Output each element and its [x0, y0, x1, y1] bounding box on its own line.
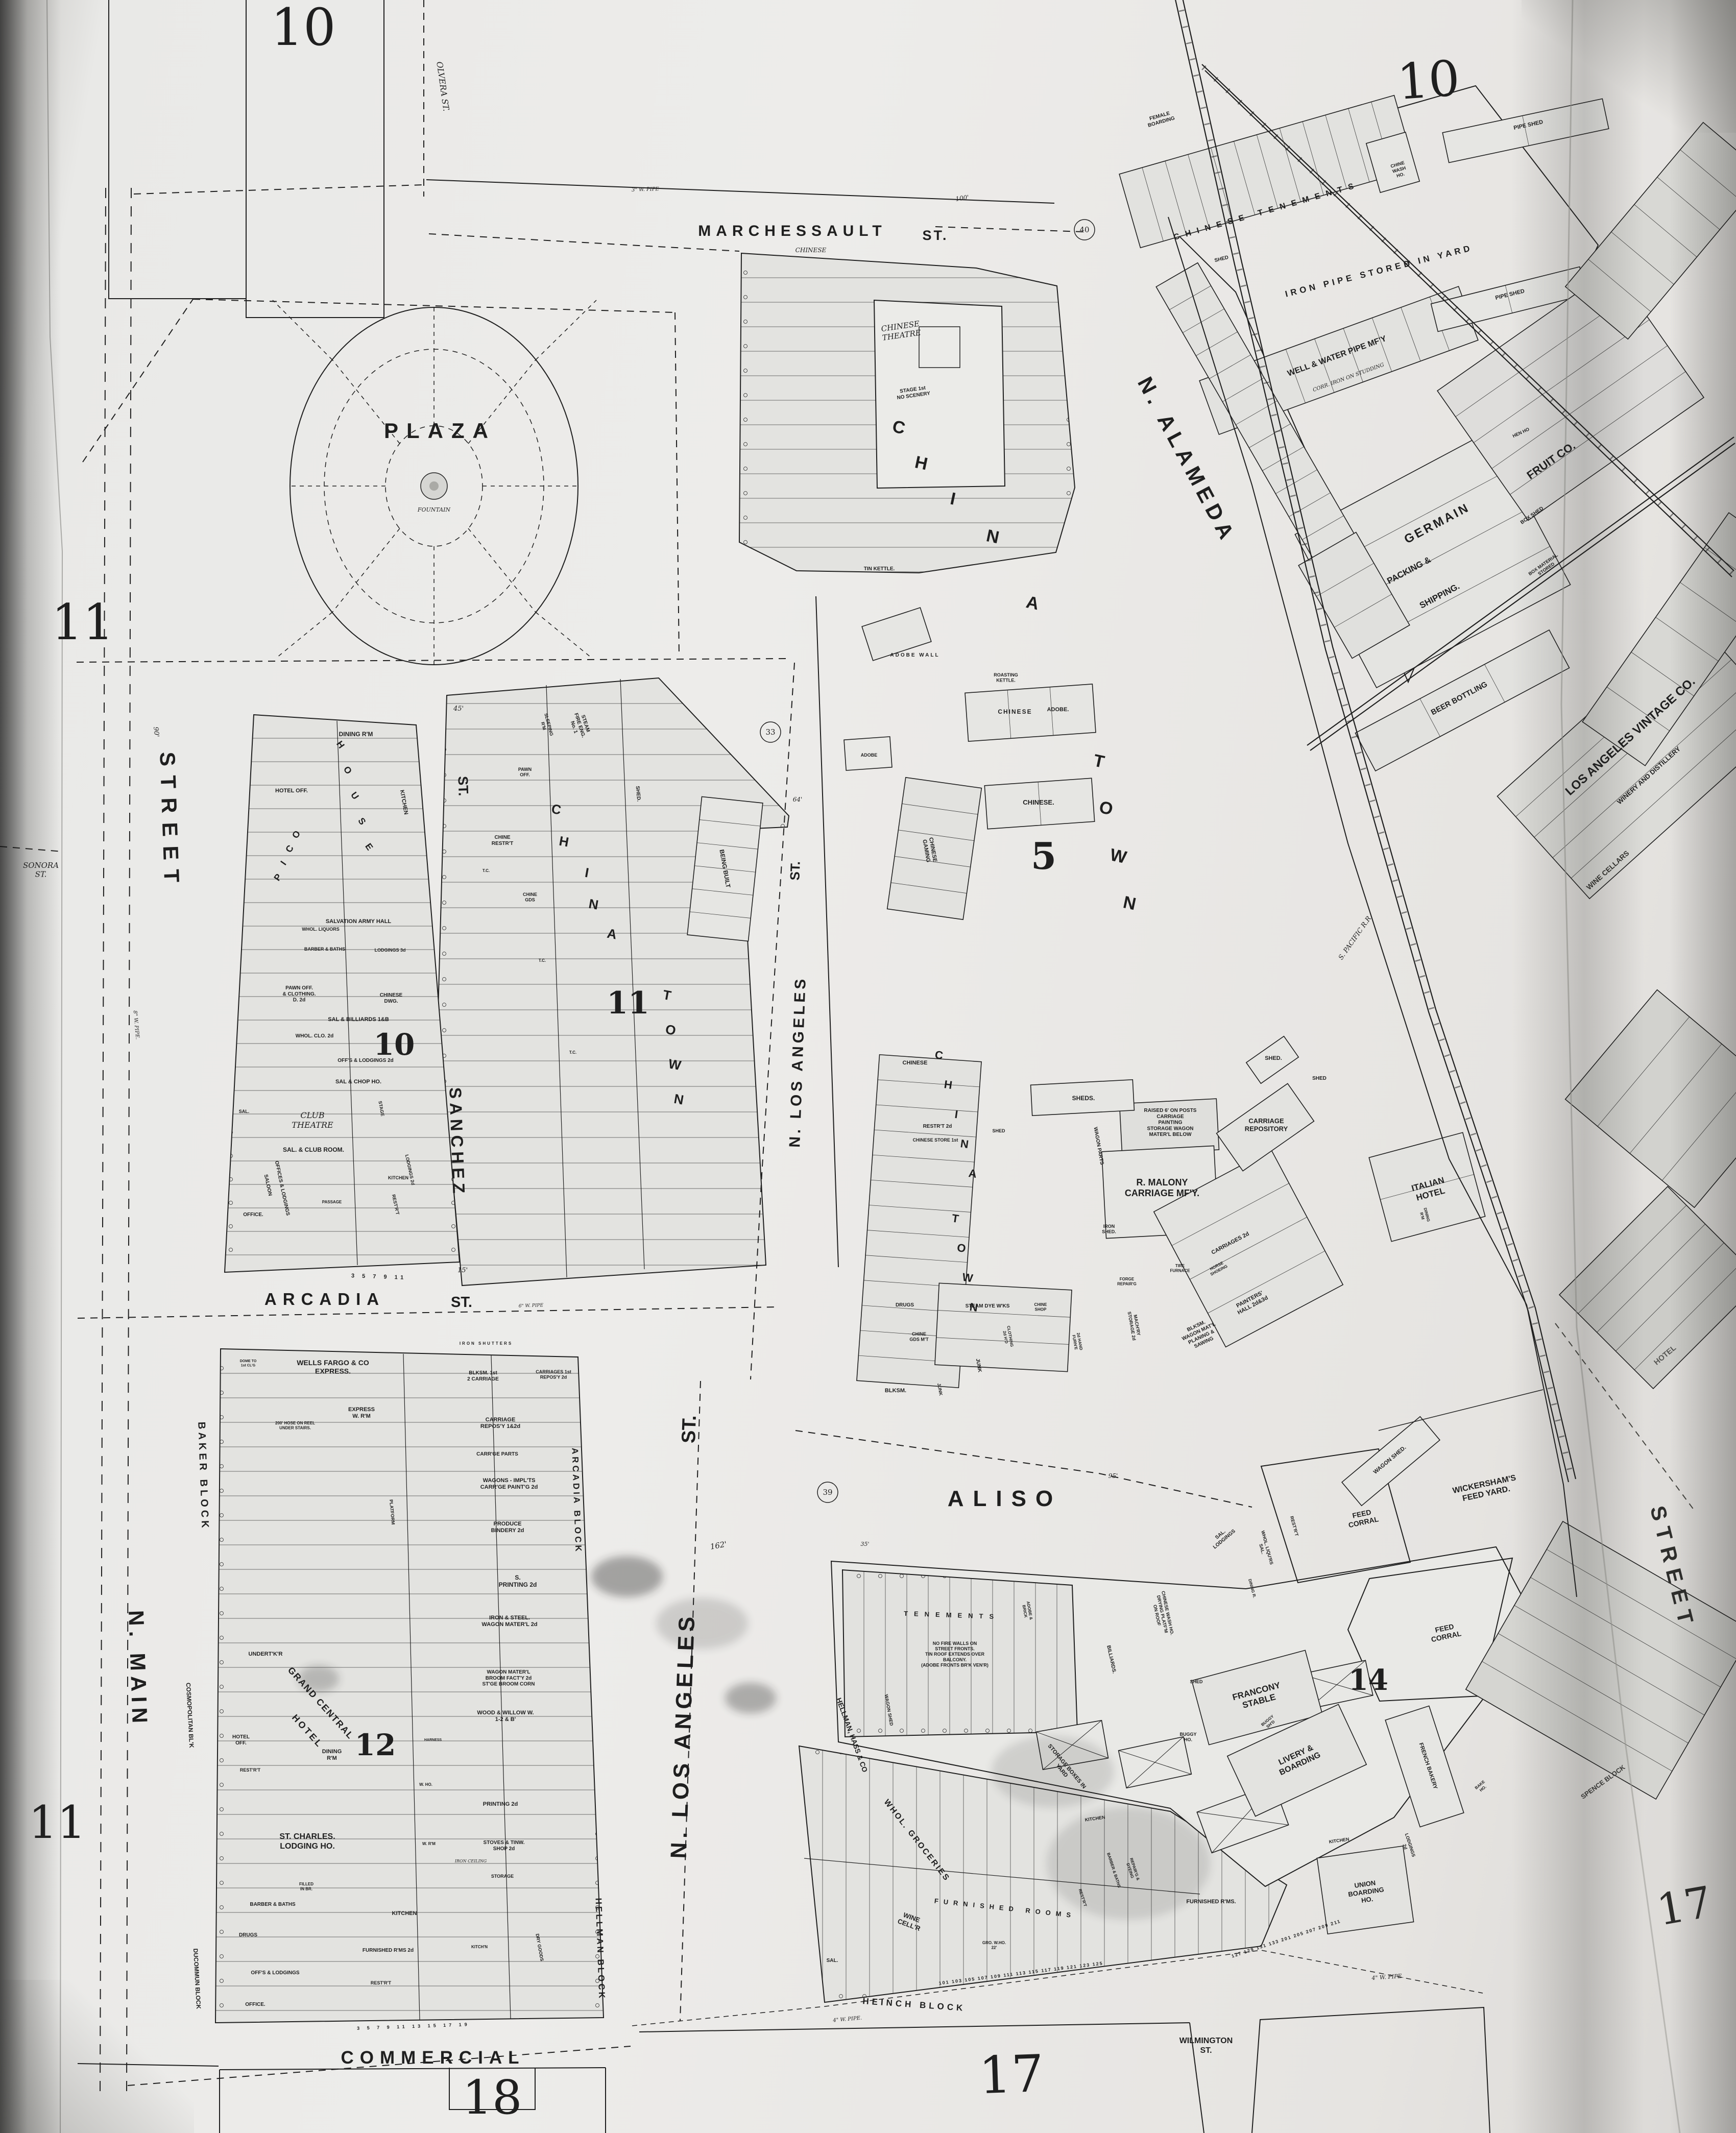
- dashed-line-19: [273, 300, 332, 360]
- label-a: A: [1024, 592, 1041, 614]
- label-95: 95': [1108, 1472, 1118, 1480]
- label-8-w-pipe: 8" W. PIPE.: [132, 1010, 140, 1040]
- label-sal-chop-ho: SAL & CHOP HO.: [335, 1079, 381, 1085]
- label-cosmopolitan-bl-k: COSMOPOLITAN BL'K: [185, 1683, 196, 1749]
- label-11: 11: [52, 594, 114, 651]
- label-3-5-7-9-11-13-15-17-19: 3 5 7 9 11 13 15 17 19: [357, 2022, 470, 2031]
- label-whol-liqu-rs-sal: WHOL. LIQU'RSSAL.: [1255, 1530, 1274, 1567]
- label-bake-ho: BAKEHO.: [1474, 1779, 1489, 1794]
- label-barber-baths: BARBER & BATHS: [304, 947, 345, 952]
- label-marchessault: MARCHESSAULT: [698, 223, 886, 239]
- label-dining-r-m: DINING R'M: [339, 731, 373, 738]
- label-shed: SHED: [992, 1128, 1005, 1133]
- line-4: [78, 2064, 219, 2066]
- label-14: 14: [1348, 1663, 1388, 1697]
- circled-number-40: 40: [1074, 220, 1095, 240]
- label-blksm-1st-2-carriage: BLKSM. 1st2 CARRIAGE: [467, 1370, 499, 1382]
- label-office: OFFICE.: [243, 1212, 263, 1218]
- label-45: 45': [453, 705, 464, 713]
- label-filled-in-br: FILLEDIN BR.: [299, 1882, 314, 1891]
- label-90: 90': [152, 726, 160, 737]
- label-sheds: SHEDS.: [1072, 1095, 1095, 1102]
- label-olvera-st: OLVERA ST.: [435, 61, 451, 112]
- label-chinese: CHINESE: [795, 247, 827, 254]
- label-carriages-1st-repos-y-2d: CARRIAGES 1stREPOS'Y 2d: [536, 1369, 571, 1380]
- label-64: 64': [793, 796, 803, 803]
- label-fountain: FOUNTAIN: [417, 506, 451, 513]
- label-harness: HARNESS: [424, 1738, 442, 1742]
- label-15: 15': [457, 1267, 468, 1274]
- label-baker-block: BAKER BLOCK: [196, 1422, 210, 1531]
- label-wilmington-st: WILMINGTONST.: [1179, 2037, 1233, 2055]
- label-chinese-store-1st: CHINESE STORE 1st: [913, 1137, 958, 1143]
- label-iron-pipe-stored-in-yard: IRON PIPE STORED IN YARD: [1284, 243, 1474, 299]
- label-rest-r-t: REST'R'T: [1289, 1515, 1299, 1537]
- dashed-line-25: [332, 528, 400, 612]
- line-9: [639, 2023, 1190, 2032]
- block-10-pico: [225, 715, 460, 1272]
- smudge-3: [298, 1665, 339, 1692]
- label-5: 5: [1031, 834, 1056, 878]
- label-storage: STORAGE: [491, 1874, 514, 1879]
- label-lodgings-3d: LODGINGS 3d: [374, 948, 405, 953]
- label-t-c: T.C.: [539, 958, 546, 963]
- label-162: 162': [709, 1539, 727, 1551]
- sanborn-map-page: CHINESECHINESETHEATRESTAGE 1stNO SCENERY…: [0, 0, 1736, 2133]
- label-restr-t-2d: RESTR'T 2d: [923, 1124, 952, 1129]
- label-mach-ry-storage-2d: MACH'RYSTORAGE 2d: [1127, 1310, 1142, 1341]
- pipe-shed-1: [1442, 99, 1608, 162]
- dashed-line-21: [536, 612, 591, 658]
- circled-number-33: 33: [760, 722, 781, 742]
- label-n-main: N. MAIN: [124, 1610, 152, 1728]
- label-sal: SAL.: [239, 1109, 250, 1114]
- dashed-line-7: [77, 659, 790, 662]
- label-dome-to-1st-cl-g: DOME TO1st CL'G: [240, 1360, 257, 1367]
- line-20: [1379, 1390, 1543, 1431]
- label-shed: SHED: [1312, 1076, 1327, 1081]
- label-salvation-army-hall: SALVATION ARMY HALL: [326, 918, 392, 925]
- dashed-line-6: [675, 312, 679, 656]
- smudge-0: [591, 1556, 663, 1597]
- label-rest-r-t: REST'R'T: [240, 1767, 261, 1773]
- line-5: [220, 2068, 606, 2070]
- label-sanchez: SANCHEZ: [446, 1087, 468, 1198]
- label-adobe-wall: ADOBE WALL: [890, 652, 939, 658]
- dashed-line-20: [277, 612, 332, 658]
- label-iron-shed: IRONSHED.: [1102, 1224, 1116, 1234]
- label-st-charles-lodging-ho: ST. CHARLES.LODGING HO.: [279, 1832, 335, 1851]
- label-10: 10: [271, 0, 335, 57]
- label-roasting-kettle: ROASTINGKETTLE.: [994, 672, 1018, 683]
- smudge-1: [725, 1683, 776, 1713]
- label-plaza: PLAZA: [384, 419, 496, 443]
- dashed-line-11: [78, 1307, 777, 1318]
- dashed-line-10: [0, 846, 62, 852]
- fold-hotel-block: [1559, 1186, 1736, 1389]
- svg-text:33: 33: [765, 728, 775, 737]
- fold-strip-3: [1565, 990, 1736, 1208]
- label-o: O: [1097, 797, 1115, 819]
- adjacent-block-a: [109, 0, 246, 299]
- label-10: 10: [374, 1027, 415, 1062]
- dashed-line-23: [468, 528, 536, 612]
- label-furnished-r-ms: FURNISHED R'MS.: [1186, 1899, 1236, 1905]
- label-produce-bindery-2d: PRODUCEBINDERY 2d: [491, 1521, 524, 1534]
- label-n-los-angeles: N. LOS ANGELES: [786, 976, 809, 1148]
- dashed-line-3: [134, 185, 424, 194]
- label-wagon-parts: WAGON PARTS: [1093, 1127, 1105, 1166]
- label-kitch-n: KITCH'N: [471, 1945, 488, 1949]
- label-n: N: [1121, 892, 1138, 914]
- label-s-pacific-r-r: S. PACIFIC R.R.: [1337, 913, 1374, 961]
- dashed-line-9: [127, 188, 131, 2093]
- label-tin-kettle: TIN KETTLE.: [864, 566, 895, 572]
- label-4-w-pipe: 4" W. PIPE.: [1371, 1973, 1404, 1981]
- label-carriage-repos-y-1-2d: CARRIAGEREPOS'Y 1&2d: [480, 1417, 520, 1429]
- label-heinch-block: HEINCH BLOCK: [862, 1996, 966, 2013]
- label-rest-r-t: REST'R'T: [371, 1980, 392, 1985]
- label-chinese: CHINESE: [903, 1060, 928, 1066]
- label-carriage-repository: CARRIAGEREPOSITORY: [1245, 1117, 1288, 1132]
- steam-dye-row: [935, 1283, 1072, 1371]
- dashed-line-8: [100, 188, 106, 2093]
- svg-text:40: 40: [1079, 225, 1089, 234]
- dashed-line-4: [83, 299, 193, 462]
- block-11: [438, 678, 789, 1286]
- label-barber-baths: BARBER & BATHS: [250, 1902, 296, 1907]
- smudge-2: [1047, 1807, 1210, 1920]
- label-printing-2d: PRINTING 2d: [483, 1801, 518, 1807]
- label-shed: SHED.: [1265, 1055, 1282, 1061]
- label-st: ST.: [455, 776, 471, 796]
- svg-text:39: 39: [823, 1488, 832, 1497]
- label-st: ST.: [678, 1415, 701, 1443]
- label-feed-corral: FEEDCORRAL: [1346, 1507, 1380, 1529]
- dashed-line-1: [429, 234, 739, 251]
- label-w: W: [961, 1271, 974, 1285]
- label-iron-steel-wagon-mater-l-2d: IRON & STEEL.WAGON MATER'L 2d: [481, 1615, 537, 1628]
- label-st: ST.: [451, 1294, 472, 1311]
- label-11: 11: [607, 985, 649, 1021]
- label-ducommun-block: DUCOMMUN BLOCK: [192, 1948, 202, 2009]
- label-arcadia: ARCADIA: [264, 1290, 385, 1308]
- label-6-w-pipe: 6" W. PIPE: [519, 1303, 544, 1309]
- label-kitchen: KITCHEN: [392, 1910, 417, 1917]
- label-sal: SAL.: [827, 1958, 838, 1964]
- label-wagons-impl-ts-carr-ge-paint-g-2d: WAGONS - IMPL'TSCARR'GE PAINT'G 2d: [480, 1477, 538, 1490]
- line-1: [816, 596, 838, 1267]
- label-adobe: ADOBE.: [1047, 707, 1069, 713]
- label-sal-lodgings: SAL.LODGINGS: [1208, 1524, 1237, 1550]
- label-street: STREET: [155, 752, 184, 892]
- label-200-hose-on-reel-under-stairs: 200' HOSE ON REELUNDER STAIRS.: [275, 1421, 315, 1430]
- label-blksm: BLKSM.: [885, 1388, 906, 1394]
- label-100: 100': [955, 193, 969, 203]
- label-sal-billiards-1-b: SAL & BILLIARDS 1&B: [328, 1016, 389, 1023]
- label-t: T: [1092, 750, 1106, 772]
- dashed-line-2: [935, 227, 1082, 232]
- chine-wash-ho: [1366, 132, 1419, 192]
- label-wickersham-s-feed-yard: WICKERSHAM'SFEED YARD.: [1452, 1473, 1518, 1505]
- label-o: O: [956, 1241, 967, 1255]
- label-st: ST.: [787, 861, 803, 881]
- label-chine-gds-m-t: CHINEGDS M'T: [909, 1331, 929, 1342]
- label-office: OFFICE.: [245, 2002, 266, 2007]
- label-forge-repair-g: FORGEREPAIR'G: [1117, 1277, 1137, 1286]
- label-w-r-m: W. R'M: [422, 1841, 436, 1846]
- label-shed: SHED: [1190, 1679, 1203, 1684]
- fold-strip-1: [1565, 123, 1736, 340]
- label-35: 35': [860, 1541, 869, 1547]
- fold-strip-5: [1466, 1521, 1736, 1799]
- label-st: ST.: [922, 228, 948, 243]
- label-11: 11: [29, 1796, 86, 1849]
- label-kitchen: KITCHEN: [388, 1175, 408, 1180]
- label-18: 18: [462, 2070, 522, 2125]
- label-t-c: T.C.: [569, 1050, 576, 1055]
- label-3-w-pipe: 3" W. PIPE: [632, 186, 660, 193]
- label-pawn-off: PAWNOFF.: [518, 767, 532, 778]
- label-n-los-angeles: N. LOS ANGELES: [666, 1612, 700, 1859]
- label-commercial: COMMERCIAL: [341, 2048, 525, 2068]
- dashed-line-12: [751, 663, 794, 1379]
- label-t-c: T.C.: [483, 868, 490, 873]
- label-aliso: ALISO: [948, 1486, 1062, 1511]
- label-3-5-7-9-11: 3 5 7 9 11: [351, 1273, 407, 1281]
- label-iron-ceiling: IRON CEILING: [454, 1859, 487, 1863]
- label-adobe: ADOBE: [861, 753, 878, 758]
- circled-number-39: 39: [817, 1482, 838, 1502]
- label-12: 12: [355, 1728, 396, 1762]
- label-drugs: DRUGS: [896, 1302, 914, 1308]
- label-10: 10: [1395, 50, 1462, 111]
- label-sonora-st: SONORAST.: [23, 861, 59, 879]
- label-17: 17: [1653, 1877, 1716, 1935]
- label-undert-k-r: UNDERT'K'R: [249, 1651, 283, 1657]
- block-12: [215, 1349, 604, 2023]
- label-female-boarding: FEMALEBOARDING: [1146, 110, 1176, 129]
- smudge-5: [992, 1736, 1114, 1807]
- label-carr-ge-parts: CARR'GE PARTS: [476, 1451, 518, 1457]
- label-4-w-pipe: 4" W. PIPE.: [832, 2016, 862, 2024]
- label-off-s-lodgings: OFF'S & LODGINGS: [251, 1970, 299, 1976]
- label-drugs: DRUGS: [239, 1932, 257, 1938]
- line-11: [1252, 2007, 1490, 2133]
- map-canvas: CHINESECHINESETHEATRESTAGE 1stNO SCENERY…: [0, 0, 1736, 2133]
- label-chinese: CHINESE: [998, 708, 1032, 715]
- smudge-4: [656, 1598, 748, 1649]
- label-passage: PASSAGE: [322, 1200, 342, 1204]
- label-17: 17: [978, 2044, 1045, 2105]
- plaza-fountain-core: [429, 481, 439, 491]
- label-w: W: [1108, 845, 1129, 867]
- label-sal-club-room: SAL. & CLUB ROOM.: [283, 1146, 344, 1153]
- label-shed: SHED: [1214, 255, 1229, 263]
- label-whol-clo-2d: WHOL. CLO. 2d: [296, 1033, 333, 1039]
- label-hotel-off: HOTEL OFF.: [275, 788, 308, 794]
- label-2d-hand-furn-e: 2d HANDFURN'E: [1071, 1332, 1083, 1352]
- label-whol-liquors: WHOL. LIQUORS: [302, 927, 340, 932]
- label-chine-restr-t: CHINERESTR'T: [492, 835, 513, 846]
- label-chinese: CHINESE.: [1023, 798, 1054, 806]
- label-a: A: [968, 1167, 977, 1180]
- label-furnished-r-ms-2d: FURNISHED R'MS 2d: [363, 1948, 414, 1953]
- label-wagon-mater-l-broom-fact-y-2d-st-ge-broom-: WAGON MATER'LBROOM FACT'Y 2dST'GE BROOM …: [483, 1669, 535, 1687]
- label-w-ho: W. HO.: [419, 1782, 432, 1787]
- label-iron-shutters: IRON SHUTTERS: [460, 1341, 513, 1346]
- label-chine-shop: CHINESHOP: [1034, 1302, 1048, 1312]
